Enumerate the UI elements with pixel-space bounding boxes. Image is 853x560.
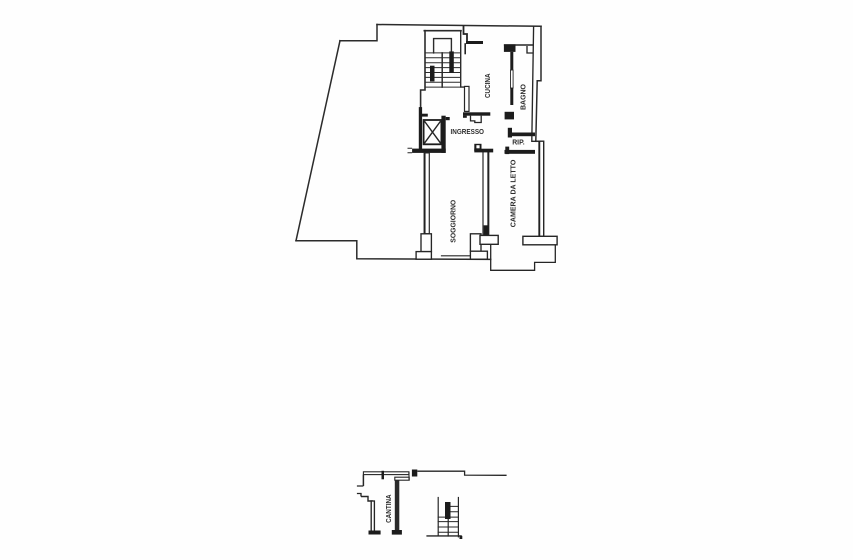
svg-text:CUCINA: CUCINA [483, 74, 492, 99]
svg-text:SOGGIORNO: SOGGIORNO [449, 199, 458, 242]
svg-text:BAGNO: BAGNO [518, 84, 527, 110]
svg-text:CANTINA: CANTINA [384, 494, 393, 523]
svg-text:INGRESSO: INGRESSO [451, 127, 485, 136]
svg-text:CAMERA DA LETTO: CAMERA DA LETTO [508, 159, 517, 227]
svg-text:RIP.: RIP. [512, 138, 525, 147]
